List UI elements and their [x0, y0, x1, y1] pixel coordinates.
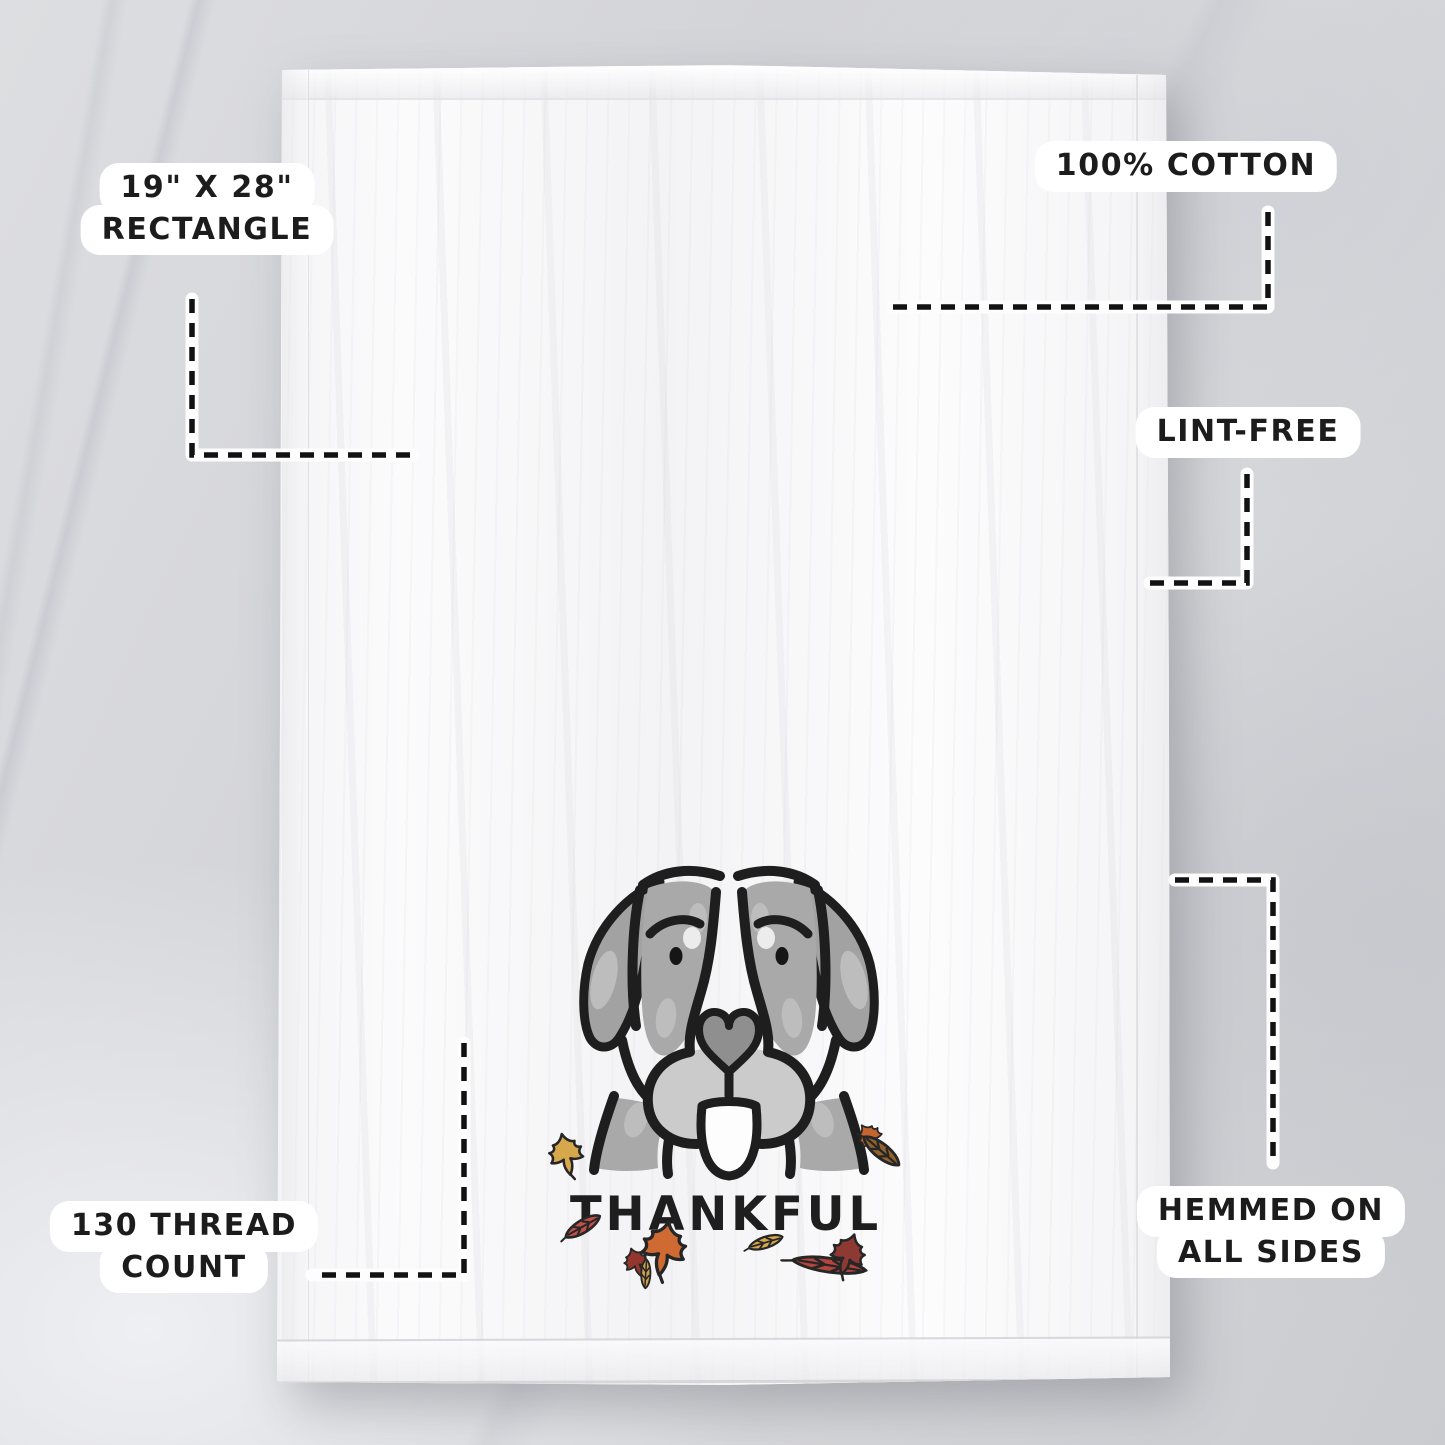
- thankful-text: THANKFUL: [570, 1187, 882, 1242]
- product-infographic: THANKFUL: [0, 0, 1445, 1445]
- callout-lint-line1: LINT-FREE: [1136, 407, 1361, 458]
- towel-top-fold: [278, 66, 1170, 100]
- towel-left-hem: [282, 70, 309, 1382]
- callout-cotton: 100% COTTON: [1035, 141, 1337, 192]
- towel-print-design: THANKFUL: [540, 858, 940, 1318]
- dog-tongue: [701, 1102, 757, 1177]
- dog-illustration: [584, 871, 875, 1176]
- callout-size-line2: RECTANGLE: [81, 205, 334, 256]
- leaf-maple-yellow-icon: [546, 1131, 587, 1183]
- callout-lint-free: LINT-FREE: [1136, 407, 1361, 458]
- callout-thread-count: 130 THREAD COUNT: [50, 1201, 318, 1293]
- callout-hemmed: HEMMED ON ALL SIDES: [1137, 1186, 1405, 1278]
- towel-bottom-hem: [272, 1336, 1174, 1384]
- callout-hemmed-line2: ALL SIDES: [1157, 1228, 1385, 1279]
- callout-thread-line2: COUNT: [100, 1243, 267, 1294]
- callout-size: 19" X 28" RECTANGLE: [81, 163, 334, 255]
- dog-white-speckles: [683, 927, 775, 949]
- callout-cotton-line1: 100% COTTON: [1035, 141, 1337, 192]
